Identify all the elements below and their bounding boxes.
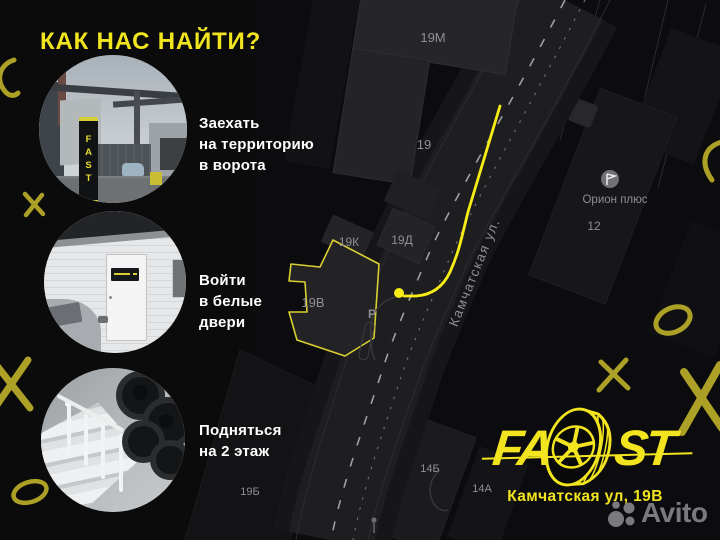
promo-image: Орион плюс 12 19М 19 19К 19Д 19В 14Б 14А…: [0, 0, 720, 540]
photo1-car: [122, 163, 144, 176]
photo-stairs: [41, 368, 185, 512]
logo-text-fa: FA: [489, 406, 556, 490]
step-2-text: Войти в белые двери: [199, 270, 262, 333]
avito-logo-icon: [608, 499, 638, 531]
route-destination-dot: [394, 288, 404, 298]
photo1-yellow-board: [150, 172, 162, 185]
doodle-big-x-left: [0, 360, 30, 412]
map-label-19m: 19М: [420, 30, 445, 45]
fast-logo: FA ST: [489, 406, 698, 490]
poi-name-label: Орион плюс: [582, 194, 647, 206]
step-1-text: Заехать на территорию в ворота: [199, 113, 314, 176]
photo3-tire: [150, 440, 185, 480]
avito-watermark: Avito: [608, 496, 707, 531]
map-label-19: 19: [417, 137, 431, 152]
avito-watermark-text: Avito: [641, 496, 707, 530]
fast-sign-text: FAST: [83, 134, 94, 186]
page-title: КАК НАС НАЙТИ?: [40, 28, 320, 56]
photo2-mirror: [98, 316, 108, 323]
photo1-banner: [160, 138, 187, 171]
poi-flag-icon: [601, 170, 619, 188]
photo3-baluster: [67, 405, 71, 454]
photo2-window: [172, 259, 186, 298]
photo3-baluster: [101, 424, 105, 479]
photo1-ground: [39, 176, 187, 203]
map-label-19v: 19В: [301, 295, 324, 310]
poi-number-label: 12: [587, 219, 601, 233]
photo2-door-sign: [111, 268, 139, 281]
map-label-19b: 19Б: [240, 486, 259, 498]
map-label-19d: 19Д: [391, 233, 412, 247]
step-3-text: Подняться на 2 этаж: [199, 420, 282, 462]
logo-text-st: ST: [610, 406, 677, 490]
photo3-baluster: [84, 414, 88, 466]
photo2-door: [106, 254, 146, 341]
fast-vertical-sign: FAST: [79, 117, 98, 202]
doodle-ring-top-left: [0, 60, 18, 95]
parking-label: Р: [368, 307, 376, 321]
photo-gate-entrance: FAST: [39, 55, 187, 203]
photo3-tire-hub: [133, 385, 147, 399]
map-label-19k: 19К: [339, 235, 359, 249]
photo-white-doors: [44, 211, 186, 353]
map-label-14b: 14Б: [420, 463, 439, 475]
